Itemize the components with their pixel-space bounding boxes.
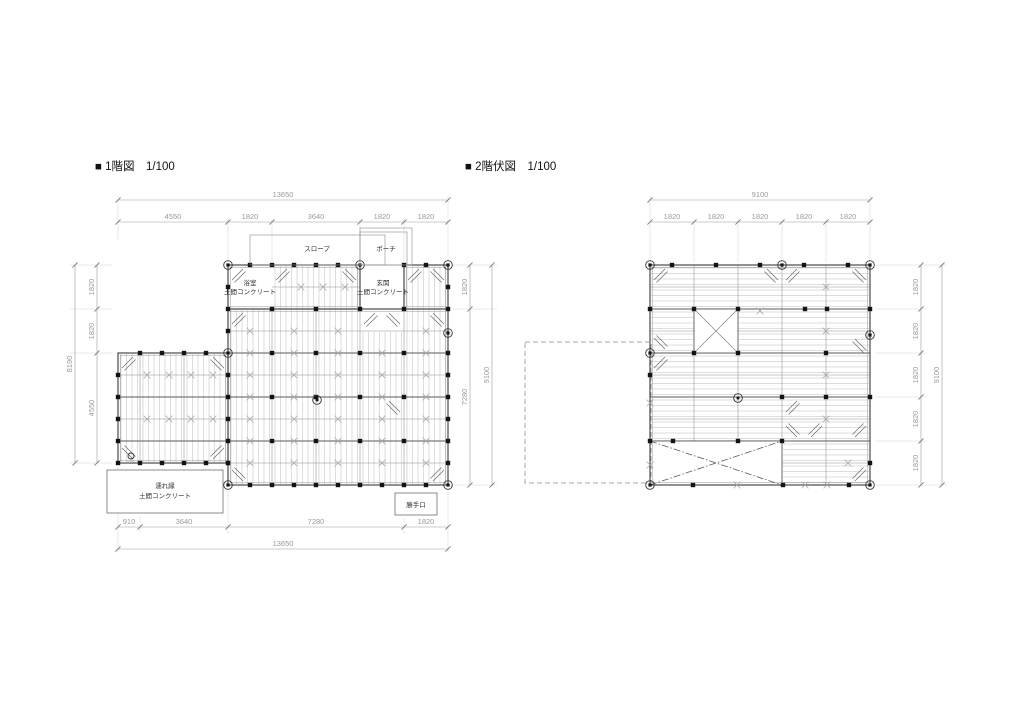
svg-text:910: 910 [123, 517, 136, 526]
svg-text:1820: 1820 [418, 212, 435, 221]
second-floor-framing-plan: 9100182018201820182018201820182018201820… [525, 190, 947, 489]
svg-text:1820: 1820 [242, 212, 259, 221]
drawing-sheet: ■ 1階図 1/100 ■ 2階伏図 1/100 スロープポーチ浴室土間コンクリ… [0, 0, 1024, 724]
svg-text:9100: 9100 [482, 367, 491, 384]
svg-text:1820: 1820 [87, 279, 96, 296]
svg-text:1820: 1820 [752, 212, 769, 221]
svg-text:1820: 1820 [460, 279, 469, 296]
svg-text:1820: 1820 [796, 212, 813, 221]
svg-text:土間コンクリート: 土間コンクリート [139, 491, 191, 500]
dimension-bottom: 91036407280182013650 [115, 517, 450, 551]
svg-text:7280: 7280 [460, 389, 469, 406]
svg-text:13650: 13650 [273, 190, 294, 199]
svg-text:1820: 1820 [911, 411, 920, 428]
svg-text:1820: 1820 [374, 212, 391, 221]
lower-floor-outline-dashed [525, 342, 651, 483]
svg-text:3640: 3640 [176, 517, 193, 526]
label-nureen: 濡れ縁 [155, 481, 175, 490]
svg-text:4550: 4550 [165, 212, 182, 221]
floor-plan-canvas: ■ 1階図 1/100 ■ 2階伏図 1/100 スロープポーチ浴室土間コンクリ… [0, 0, 1024, 724]
label-entrance: 玄関 [377, 278, 390, 287]
svg-text:1820: 1820 [87, 323, 96, 340]
plan2-title: ■ 2階伏図 1/100 [465, 159, 556, 173]
beams [118, 287, 448, 485]
first-floor-plan: スロープポーチ浴室土間コンクリート玄関土間コンクリート濡れ縁土間コンクリート勝手… [65, 190, 497, 552]
stair-opening [694, 309, 738, 353]
label-slope: スロープ [304, 245, 330, 253]
svg-text:1820: 1820 [840, 212, 857, 221]
svg-text:1820: 1820 [664, 212, 681, 221]
dimension-right: 182072809100 [460, 262, 494, 487]
svg-text:1820: 1820 [418, 517, 435, 526]
plan1-title: ■ 1階図 1/100 [95, 159, 175, 173]
svg-text:1820: 1820 [911, 279, 920, 296]
svg-text:1820: 1820 [708, 212, 725, 221]
dimension-top: 1365045501820364018201820 [115, 190, 450, 224]
svg-text:1820: 1820 [911, 455, 920, 472]
svg-text:1820: 1820 [911, 323, 920, 340]
dimension-left: 8190182018204550 [65, 262, 99, 465]
svg-text:4550: 4550 [87, 400, 96, 417]
dimension-top: 910018201820182018201820 [647, 190, 872, 224]
void-opening [650, 441, 782, 485]
svg-text:13650: 13650 [273, 539, 294, 548]
svg-text:土間コンクリート: 土間コンクリート [357, 287, 409, 296]
dimension-right: 182018201820182018209100 [911, 262, 944, 487]
svg-text:土間コンクリート: 土間コンクリート [224, 287, 276, 296]
label-kitchen-door: 勝手口 [406, 500, 426, 509]
label-porch: ポーチ [376, 245, 396, 253]
svg-text:9100: 9100 [752, 190, 769, 199]
svg-text:9100: 9100 [932, 367, 941, 384]
svg-text:7280: 7280 [308, 517, 325, 526]
svg-text:3640: 3640 [308, 212, 325, 221]
label-bath: 浴室 [244, 278, 258, 287]
svg-text:8190: 8190 [65, 356, 74, 373]
svg-text:1820: 1820 [911, 367, 920, 384]
